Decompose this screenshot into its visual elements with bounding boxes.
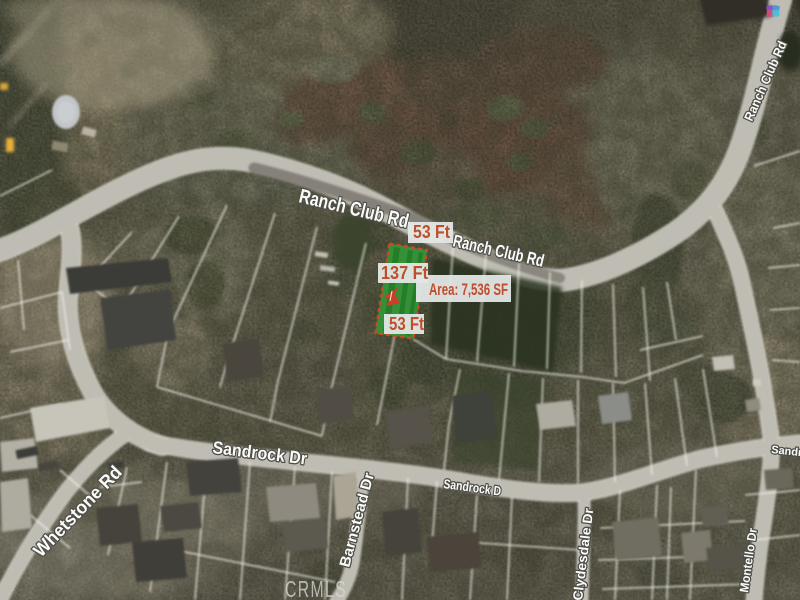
svg-text:Area: 7,536 SF: Area: 7,536 SF — [429, 281, 508, 299]
svg-text:137 Ft: 137 Ft — [381, 263, 428, 283]
svg-text:CRMLS: CRMLS — [285, 576, 347, 600]
svg-text:53 Ft: 53 Ft — [413, 222, 450, 242]
svg-text:53 Ft: 53 Ft — [389, 314, 424, 334]
